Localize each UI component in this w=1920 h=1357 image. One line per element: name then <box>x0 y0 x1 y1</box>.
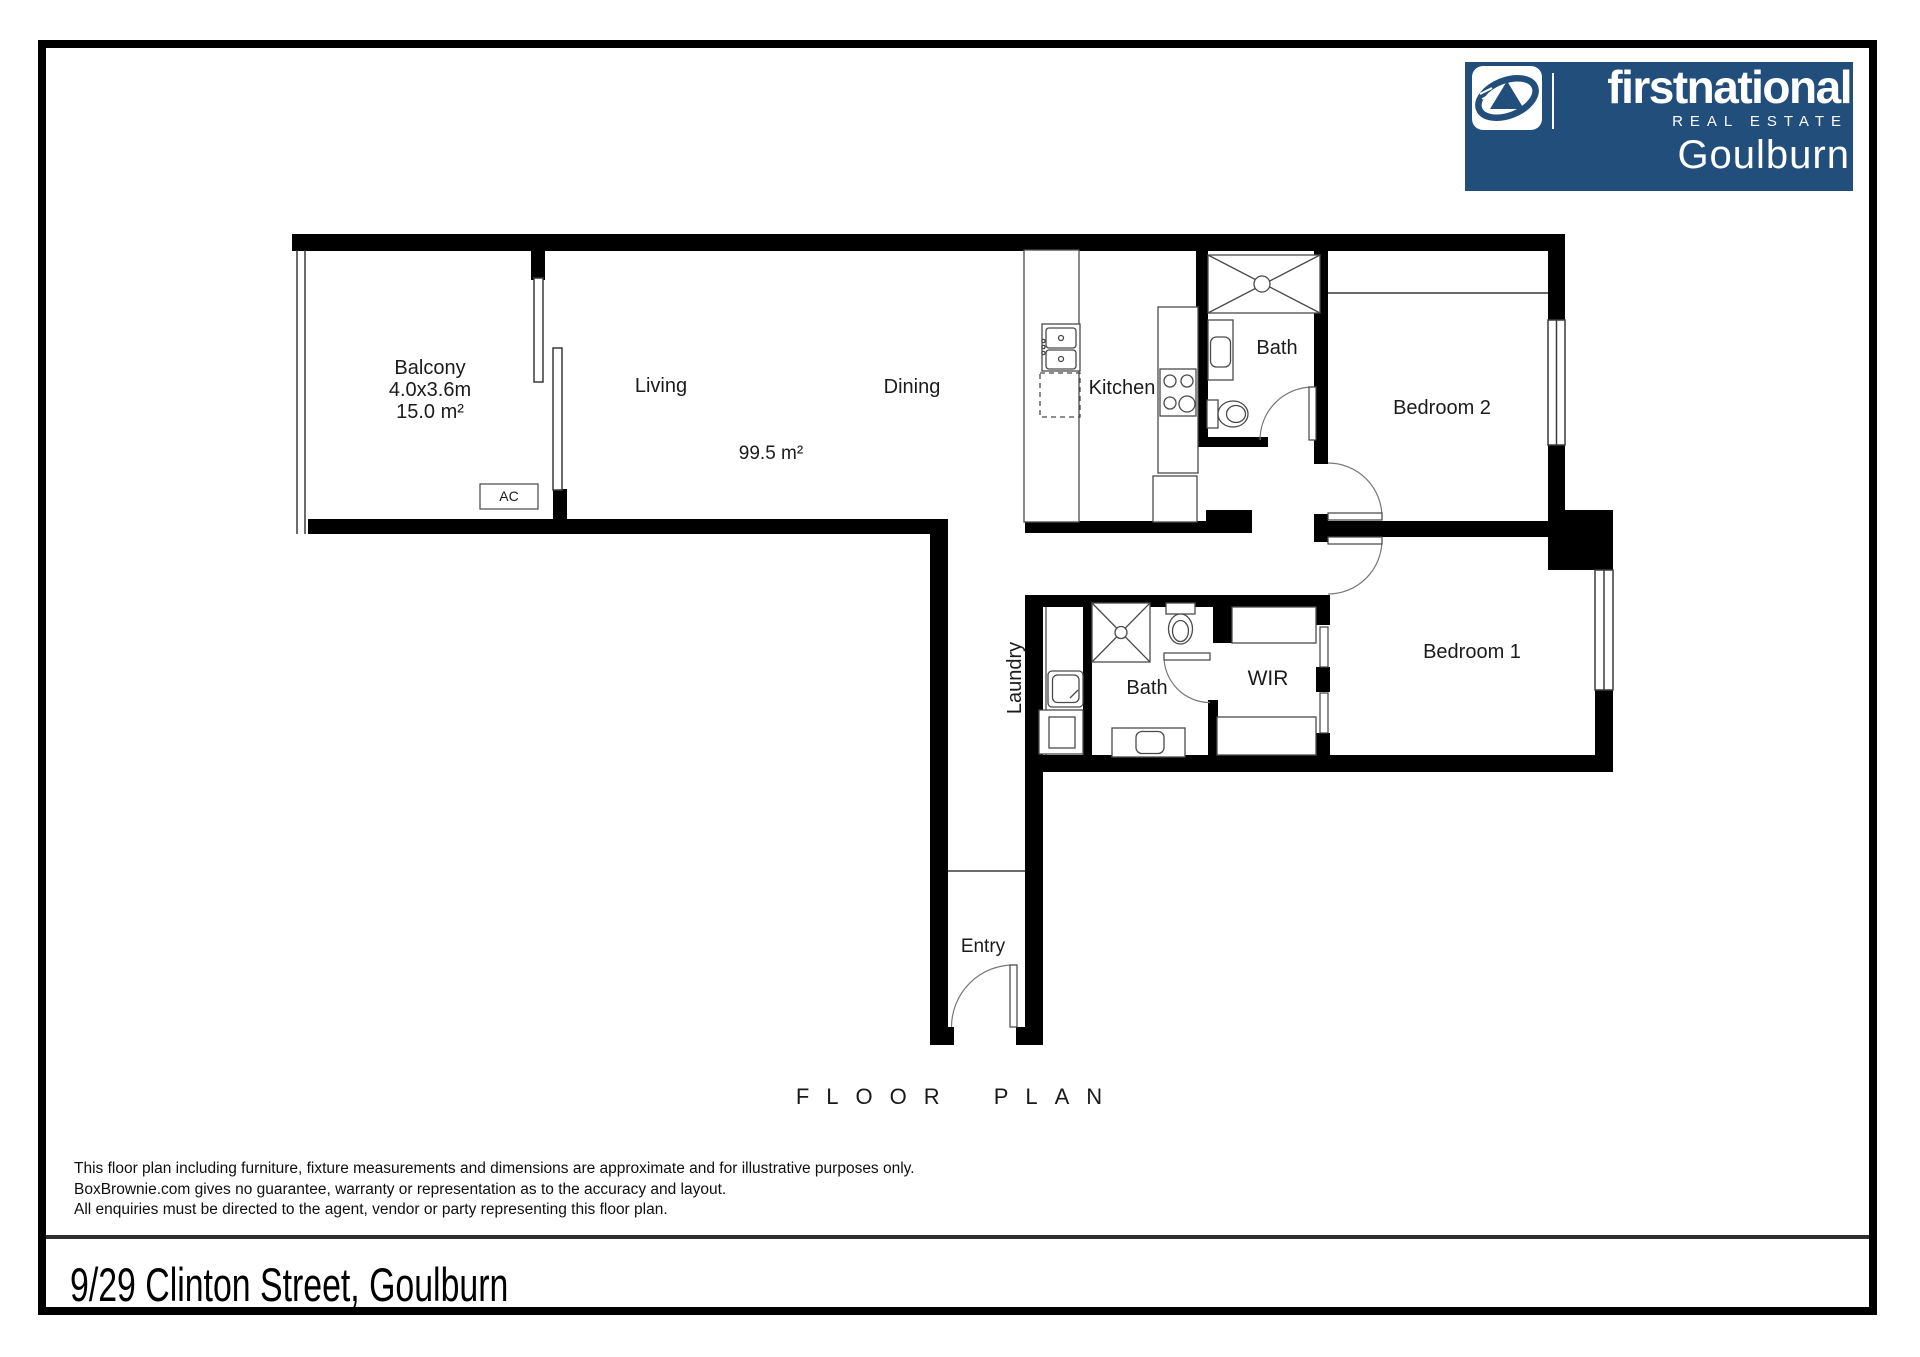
bath-lower-door-leaf <box>1164 653 1210 660</box>
logo-brand-name: firstnational <box>1557 59 1851 115</box>
burner-4 <box>1179 396 1195 412</box>
wall-wir-right-2 <box>1316 667 1330 692</box>
burner-3 <box>1164 397 1176 409</box>
wall-wir-right-3 <box>1316 733 1330 757</box>
label-bath-lower: Bath <box>1126 677 1167 699</box>
bedroom1-door-leaf <box>1328 537 1382 544</box>
sink-drain-1 <box>1059 336 1064 341</box>
label-living-dining-area: 99.5 m² <box>739 443 803 464</box>
sliding-door-panel-1 <box>534 278 543 382</box>
address-separator-line <box>46 1235 1869 1239</box>
toilet-lower-tank <box>1166 603 1195 614</box>
label-wir: WIR <box>1248 667 1289 690</box>
label-kitchen: Kitchen <box>1089 377 1156 399</box>
wall-bedroom2-right-bottom <box>1548 445 1565 522</box>
washing-machine-inner <box>1049 717 1075 748</box>
wall-bedroom2-bottom <box>1328 521 1565 537</box>
shower-top-drain <box>1254 276 1270 292</box>
toilet-lower-bowl-inner <box>1173 621 1189 642</box>
label-dining: Dining <box>884 376 941 398</box>
wall-balcony-living-bottom <box>308 519 948 534</box>
logo-divider <box>1552 73 1554 129</box>
sink-tap-dot-1 <box>1042 339 1045 342</box>
wall-wir-stub <box>1213 607 1232 643</box>
label-bedroom2: Bedroom 2 <box>1393 397 1491 419</box>
kitchen-bench-left <box>1024 250 1079 522</box>
disclaimer-line-3: All enquiries must be directed to the ag… <box>74 1200 915 1221</box>
laundry-tub-inner <box>1053 675 1080 703</box>
label-entry: Entry <box>961 936 1006 957</box>
label-living: Living <box>635 375 687 397</box>
burner-1 <box>1164 375 1176 387</box>
wall-bedroom2-right-top <box>1548 234 1565 320</box>
vanity-lower-basin <box>1136 732 1164 754</box>
sink-drain-2 <box>1059 357 1064 362</box>
label-bath-top: Bath <box>1256 337 1297 359</box>
wall-slider-stub-top <box>531 250 545 280</box>
floor-plan-drawing: Balcony 4.0x3.6m 15.0 m² Living Dining 9… <box>270 225 1650 1060</box>
wall-corridor-left <box>930 519 948 1045</box>
label-laundry: Laundry <box>1004 642 1026 714</box>
label-bedroom1: Bedroom 1 <box>1423 641 1521 663</box>
wall-laundry-bath2 <box>1083 595 1092 757</box>
sink-tap-dot-3 <box>1042 351 1045 354</box>
label-balcony: Balcony <box>394 357 465 379</box>
wir-shelf-top <box>1232 607 1316 643</box>
fridge-space <box>1153 476 1197 522</box>
wir-door-panel-1 <box>1320 627 1328 667</box>
sliding-door-panel-2 <box>553 348 562 490</box>
label-balcony-area: 15.0 m² <box>396 401 464 423</box>
logo-tagline: REAL ESTATE <box>1672 113 1848 130</box>
wir-door-panel-2 <box>1320 693 1328 733</box>
wall-kitchen-step <box>1206 510 1252 533</box>
label-balcony-dimensions: 4.0x3.6m <box>389 379 471 401</box>
wall-entry-sill-left <box>930 1027 954 1045</box>
agency-logo: firstnational REAL ESTATE Goulburn <box>1465 62 1853 191</box>
disclaimer-line-2: BoxBrownie.com gives no guarantee, warra… <box>74 1180 915 1201</box>
toilet-top-bowl-inner <box>1227 406 1246 423</box>
fixtures <box>480 250 1320 757</box>
floor-plan-page: { "logo": { "brand": "firstnational", "t… <box>0 0 1920 1357</box>
laundry-fixtures <box>1039 607 1083 755</box>
first-national-icon <box>1472 66 1542 135</box>
bedroom2-door-arc <box>1328 463 1382 517</box>
disclaimer-line-1: This floor plan including furniture, fix… <box>74 1159 915 1180</box>
floor-plan-title: FLOOR PLAN <box>0 1084 1915 1110</box>
bath-lower-door-arc <box>1164 657 1210 703</box>
bath-top-door-arc <box>1260 387 1313 440</box>
wall-door-node <box>1314 514 1328 542</box>
walls <box>292 234 1613 1045</box>
bath-top-door-leaf <box>1309 387 1316 440</box>
wall-top <box>292 234 1565 251</box>
wall-wir-right-1 <box>1316 595 1330 625</box>
wall-bath1-bottom <box>1208 437 1268 447</box>
sink-tap-dot-2 <box>1042 345 1045 348</box>
logo-office-name: Goulburn <box>1677 133 1850 178</box>
vanity-top-basin <box>1211 337 1231 367</box>
entry-door-leaf <box>1010 965 1017 1027</box>
bedroom2-door-leaf <box>1328 513 1382 520</box>
wir-shelf-bottom <box>1217 717 1316 755</box>
bedroom1-door-arc <box>1328 540 1382 594</box>
burner-2 <box>1181 375 1193 387</box>
windows-and-lines <box>297 250 1613 871</box>
wall-corridor-right <box>1025 595 1043 1045</box>
shower-lower-drain <box>1115 627 1127 639</box>
disclaimer-text: This floor plan including furniture, fix… <box>74 1159 915 1221</box>
wall-slider-stub-bottom <box>553 489 567 519</box>
toilet-top-tank <box>1207 400 1218 428</box>
property-address: 9/29 Clinton Street, Goulburn <box>70 1257 508 1312</box>
label-ac: AC <box>499 488 518 504</box>
entry-door-arc <box>952 965 1014 1027</box>
